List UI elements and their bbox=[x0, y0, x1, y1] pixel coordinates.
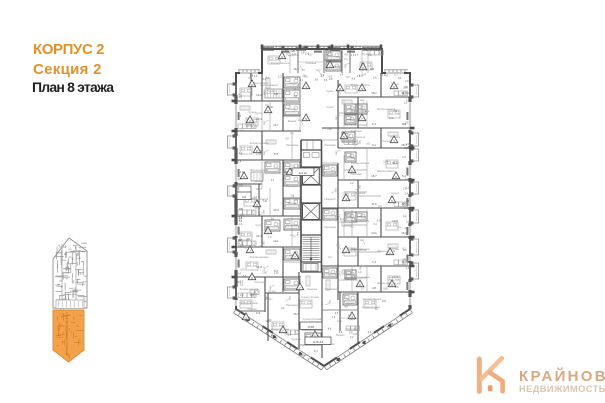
svg-text:4,6: 4,6 bbox=[242, 195, 247, 199]
svg-text:2,3: 2,3 bbox=[376, 49, 380, 52]
svg-text:Прихожая: Прихожая bbox=[286, 143, 299, 147]
svg-text:9,8: 9,8 bbox=[370, 67, 374, 71]
svg-text:3,9: 3,9 bbox=[405, 179, 409, 182]
svg-text:15,2: 15,2 bbox=[371, 91, 377, 95]
svg-text:1: 1 bbox=[267, 230, 269, 234]
svg-text:1,4: 1,4 bbox=[340, 74, 344, 77]
svg-text:3,5: 3,5 bbox=[382, 299, 386, 303]
svg-text:2,40: 2,40 bbox=[256, 153, 261, 156]
svg-text:Прихожая: Прихожая bbox=[324, 225, 337, 229]
svg-text:Прихожая: Прихожая bbox=[350, 248, 362, 251]
svg-text:9: 9 bbox=[281, 55, 283, 59]
svg-text:5,8: 5,8 bbox=[274, 92, 278, 96]
svg-text:1,1: 1,1 bbox=[332, 316, 336, 319]
svg-text:5,5: 5,5 bbox=[274, 152, 278, 156]
svg-text:7: 7 bbox=[249, 249, 251, 253]
svg-text:3,6: 3,6 bbox=[315, 78, 319, 81]
svg-text:2,3: 2,3 bbox=[278, 76, 282, 79]
svg-text:Кор.: Кор. bbox=[327, 127, 332, 131]
svg-text:9,1: 9,1 bbox=[372, 143, 376, 147]
svg-text:1,8: 1,8 bbox=[398, 77, 402, 80]
svg-text:Жилая комната: Жилая комната bbox=[250, 255, 269, 259]
svg-text:4,3: 4,3 bbox=[328, 75, 332, 78]
svg-text:Прихожая: Прихожая bbox=[286, 223, 299, 227]
svg-text:9: 9 bbox=[251, 83, 253, 87]
svg-text:2,6: 2,6 bbox=[362, 73, 366, 76]
svg-text:3,8: 3,8 bbox=[291, 50, 295, 53]
svg-text:1: 1 bbox=[393, 139, 395, 143]
svg-text:6: 6 bbox=[391, 199, 393, 203]
svg-text:6: 6 bbox=[251, 276, 253, 280]
svg-text:17,7: 17,7 bbox=[256, 187, 262, 191]
svg-text:Жилая комната: Жилая комната bbox=[250, 141, 269, 145]
svg-text:4,1: 4,1 bbox=[266, 296, 270, 299]
svg-text:16,2: 16,2 bbox=[401, 231, 407, 235]
svg-text:6,2 м²: 6,2 м² bbox=[299, 171, 307, 175]
svg-text:3,30: 3,30 bbox=[377, 220, 382, 223]
svg-text:1,8: 1,8 bbox=[292, 53, 296, 56]
svg-text:16,7: 16,7 bbox=[293, 312, 299, 316]
svg-text:2,1: 2,1 bbox=[382, 74, 386, 77]
svg-text:8,66: 8,66 bbox=[308, 325, 314, 329]
svg-text:1,4: 1,4 bbox=[239, 223, 243, 226]
svg-text:1,5: 1,5 bbox=[374, 307, 378, 310]
svg-text:9: 9 bbox=[243, 175, 245, 179]
svg-text:4,1: 4,1 bbox=[266, 77, 270, 80]
svg-text:Кухня-гостиная: Кухня-гостиная bbox=[301, 296, 319, 299]
svg-text:13,4: 13,4 bbox=[273, 208, 279, 212]
svg-text:Жилая комната: Жилая комната bbox=[351, 161, 370, 165]
svg-text:Кор.: Кор. bbox=[337, 319, 342, 323]
svg-text:4,8: 4,8 bbox=[352, 78, 356, 81]
svg-text:Кухня-гостиная: Кухня-гостиная bbox=[240, 302, 258, 305]
svg-text:Жилая комната: Жилая комната bbox=[377, 108, 396, 111]
svg-text:7: 7 bbox=[361, 117, 363, 121]
svg-text:Спальня: Спальня bbox=[306, 61, 317, 65]
svg-text:Прихожая: Прихожая bbox=[350, 130, 362, 133]
svg-text:13,2: 13,2 bbox=[256, 93, 262, 97]
svg-text:6: 6 bbox=[362, 66, 364, 70]
svg-text:1,8: 1,8 bbox=[368, 54, 372, 57]
svg-text:4,8: 4,8 bbox=[372, 286, 376, 290]
svg-text:4,6: 4,6 bbox=[328, 327, 332, 330]
svg-text:3,5: 3,5 bbox=[239, 185, 243, 188]
svg-text:Спальня: Спальня bbox=[355, 191, 366, 195]
svg-text:2,5: 2,5 bbox=[405, 122, 409, 125]
svg-text:Кухня: Кухня bbox=[256, 223, 264, 227]
svg-text:Спальня: Спальня bbox=[307, 287, 318, 291]
svg-text:Прихожая: Прихожая bbox=[286, 303, 299, 307]
svg-text:Ванная: Ванная bbox=[288, 202, 297, 205]
svg-text:4,5: 4,5 bbox=[404, 227, 408, 230]
svg-text:2,9: 2,9 bbox=[339, 331, 343, 334]
svg-text:4: 4 bbox=[351, 315, 353, 319]
svg-text:Лоджия: Лоджия bbox=[336, 334, 346, 337]
svg-text:3,7: 3,7 bbox=[346, 76, 350, 79]
svg-text:5: 5 bbox=[343, 135, 345, 139]
svg-text:3,60: 3,60 bbox=[389, 117, 394, 120]
svg-text:4,8: 4,8 bbox=[406, 200, 410, 203]
svg-text:1,6: 1,6 bbox=[403, 188, 407, 191]
svg-text:2,6: 2,6 bbox=[268, 319, 272, 322]
svg-text:6: 6 bbox=[267, 109, 269, 113]
svg-text:Кухня-гостиная: Кухня-гостиная bbox=[303, 317, 322, 321]
svg-text:15,7: 15,7 bbox=[371, 174, 377, 178]
svg-text:4: 4 bbox=[305, 85, 307, 89]
svg-text:3,4: 3,4 bbox=[281, 307, 285, 310]
svg-text:Жилая комната: Жилая комната bbox=[351, 275, 370, 279]
svg-text:12,4: 12,4 bbox=[392, 275, 398, 279]
svg-text:9,3: 9,3 bbox=[250, 293, 254, 297]
svg-text:4,4: 4,4 bbox=[254, 75, 258, 78]
svg-text:11,7: 11,7 bbox=[273, 123, 279, 127]
svg-text:8: 8 bbox=[359, 283, 361, 287]
svg-text:1,00: 1,00 bbox=[353, 333, 358, 336]
svg-text:1: 1 bbox=[345, 249, 347, 253]
svg-text:8: 8 bbox=[393, 85, 395, 89]
svg-text:Жилая: Жилая bbox=[255, 179, 264, 183]
svg-text:1,4: 1,4 bbox=[404, 193, 408, 196]
svg-text:1,9: 1,9 bbox=[250, 75, 254, 78]
svg-text:4,8: 4,8 bbox=[239, 152, 243, 155]
svg-text:Прихожая: Прихожая bbox=[350, 173, 362, 176]
svg-text:1,4: 1,4 bbox=[238, 161, 242, 164]
svg-text:Кухня: Кухня bbox=[392, 191, 400, 195]
svg-text:3,8: 3,8 bbox=[238, 96, 242, 99]
svg-text:5: 5 bbox=[361, 87, 363, 91]
svg-text:14,2: 14,2 bbox=[392, 161, 398, 165]
svg-text:10,1: 10,1 bbox=[256, 234, 262, 238]
svg-text:Кухня: Кухня bbox=[327, 106, 334, 109]
svg-text:3,4: 3,4 bbox=[405, 92, 409, 95]
svg-text:2,8: 2,8 bbox=[329, 78, 333, 81]
svg-text:3,4: 3,4 bbox=[324, 79, 328, 82]
svg-text:Ванная: Ванная bbox=[288, 107, 297, 111]
svg-text:Ванная: Ванная bbox=[288, 120, 297, 123]
svg-text:Жилая комната: Жилая комната bbox=[240, 287, 259, 291]
svg-text:2,0: 2,0 bbox=[285, 50, 289, 53]
svg-text:1,10: 1,10 bbox=[274, 272, 279, 275]
svg-text:Жилая комната: Жилая комната bbox=[260, 84, 279, 87]
svg-text:2,4: 2,4 bbox=[238, 115, 242, 118]
svg-text:Прихожая: Прихожая bbox=[346, 328, 358, 331]
svg-text:4,8: 4,8 bbox=[404, 86, 408, 89]
svg-text:Кухня: Кухня bbox=[249, 111, 256, 114]
svg-text:2,5: 2,5 bbox=[335, 312, 339, 315]
svg-text:2,4: 2,4 bbox=[305, 53, 309, 56]
svg-text:11,6: 11,6 bbox=[371, 202, 377, 206]
svg-text:Лоджия: Лоджия bbox=[300, 354, 310, 357]
svg-text:4,0: 4,0 bbox=[308, 54, 312, 57]
svg-text:3: 3 bbox=[245, 316, 247, 320]
svg-text:Кухня: Кухня bbox=[269, 289, 277, 293]
svg-text:Гардероб: Гардероб bbox=[325, 198, 337, 201]
svg-text:Кухня: Кухня bbox=[256, 111, 264, 115]
svg-text:2,6: 2,6 bbox=[357, 75, 361, 78]
svg-text:1,4: 1,4 bbox=[406, 267, 410, 270]
svg-text:2,4: 2,4 bbox=[302, 75, 306, 78]
svg-text:S=8,34: S=8,34 bbox=[313, 340, 323, 344]
svg-text:9,3: 9,3 bbox=[256, 311, 260, 315]
svg-text:13,1: 13,1 bbox=[371, 231, 377, 235]
svg-text:4,2: 4,2 bbox=[350, 336, 354, 339]
svg-text:7: 7 bbox=[299, 286, 301, 290]
svg-text:2,6: 2,6 bbox=[406, 143, 410, 146]
svg-text:1,9: 1,9 bbox=[404, 102, 408, 105]
svg-text:4: 4 bbox=[395, 175, 397, 179]
svg-text:4,8: 4,8 bbox=[364, 49, 368, 52]
svg-text:7: 7 bbox=[329, 64, 331, 68]
svg-text:1,3: 1,3 bbox=[238, 219, 242, 222]
svg-text:4: 4 bbox=[345, 197, 347, 201]
svg-text:7: 7 bbox=[282, 329, 284, 333]
svg-text:2,6: 2,6 bbox=[240, 208, 244, 211]
svg-text:12,1: 12,1 bbox=[273, 239, 279, 243]
svg-text:9: 9 bbox=[339, 87, 341, 91]
svg-text:Прихожая: Прихожая bbox=[324, 171, 337, 175]
svg-text:2,80: 2,80 bbox=[345, 214, 350, 217]
svg-text:1,6: 1,6 bbox=[402, 258, 406, 261]
svg-text:Прихожая: Прихожая bbox=[286, 184, 299, 188]
svg-text:3,70: 3,70 bbox=[240, 269, 245, 272]
svg-text:3,40: 3,40 bbox=[262, 200, 267, 203]
svg-text:Жилая комната: Жилая комната bbox=[250, 169, 269, 172]
svg-text:1,4: 1,4 bbox=[237, 272, 241, 275]
svg-text:8: 8 bbox=[256, 149, 258, 153]
svg-text:4,9: 4,9 bbox=[344, 53, 348, 56]
svg-text:1,5: 1,5 bbox=[339, 51, 343, 54]
svg-text:7: 7 bbox=[294, 255, 296, 259]
svg-text:1,2: 1,2 bbox=[295, 78, 299, 81]
svg-text:5,1: 5,1 bbox=[372, 122, 376, 126]
svg-text:1,1: 1,1 bbox=[351, 54, 355, 57]
svg-text:Жилая комната: Жилая комната bbox=[351, 109, 370, 113]
svg-text:3: 3 bbox=[256, 203, 258, 207]
svg-text:3,9: 3,9 bbox=[240, 294, 244, 297]
svg-text:2,20: 2,20 bbox=[383, 161, 388, 164]
svg-text:2,9: 2,9 bbox=[405, 80, 409, 83]
svg-text:5: 5 bbox=[305, 117, 307, 121]
svg-text:Прихожая: Прихожая bbox=[324, 144, 336, 147]
svg-text:Жилая комната: Жилая комната bbox=[351, 219, 370, 223]
svg-text:3: 3 bbox=[249, 119, 251, 123]
svg-text:1,7: 1,7 bbox=[355, 54, 359, 57]
svg-text:4,4: 4,4 bbox=[240, 130, 244, 133]
svg-text:3,4: 3,4 bbox=[321, 75, 325, 78]
svg-text:2,50: 2,50 bbox=[262, 272, 267, 275]
svg-text:Жилая комната: Жилая комната bbox=[363, 297, 382, 301]
svg-text:Лоджия: Лоджия bbox=[291, 337, 301, 341]
svg-text:10,9: 10,9 bbox=[392, 219, 398, 223]
svg-text:Прихожая: Прихожая bbox=[325, 287, 338, 291]
svg-text:2,1: 2,1 bbox=[406, 187, 410, 190]
svg-text:10,4: 10,4 bbox=[256, 117, 262, 121]
svg-text:1,3: 1,3 bbox=[402, 156, 406, 159]
svg-text:Спальня: Спальня bbox=[254, 281, 265, 284]
svg-text:1,0: 1,0 bbox=[406, 220, 410, 223]
svg-text:Жилая комната: Жилая комната bbox=[377, 170, 396, 173]
svg-text:7: 7 bbox=[289, 171, 291, 175]
svg-text:4,3: 4,3 bbox=[239, 242, 243, 245]
svg-text:2,1: 2,1 bbox=[300, 79, 304, 82]
svg-text:7,4: 7,4 bbox=[372, 260, 376, 264]
svg-text:6: 6 bbox=[351, 169, 353, 173]
svg-text:1: 1 bbox=[389, 251, 391, 255]
svg-text:6,7: 6,7 bbox=[314, 349, 318, 353]
svg-text:4,2: 4,2 bbox=[368, 331, 372, 334]
svg-text:4,6: 4,6 bbox=[344, 305, 348, 308]
svg-text:5,4: 5,4 bbox=[402, 174, 406, 178]
svg-text:2,1: 2,1 bbox=[328, 52, 332, 55]
svg-text:4,2: 4,2 bbox=[402, 247, 406, 250]
svg-text:Кухня: Кухня bbox=[327, 89, 335, 93]
svg-text:3,3: 3,3 bbox=[404, 207, 408, 210]
svg-text:3,2: 3,2 bbox=[403, 215, 407, 218]
svg-text:3,00: 3,00 bbox=[383, 287, 388, 290]
svg-text:18,3: 18,3 bbox=[293, 67, 299, 71]
svg-text:6: 6 bbox=[391, 283, 393, 287]
svg-text:2,8: 2,8 bbox=[373, 76, 377, 79]
svg-text:Жилая комната: Жилая комната bbox=[271, 61, 290, 65]
svg-text:12,8: 12,8 bbox=[256, 265, 262, 269]
svg-text:2,2: 2,2 bbox=[405, 147, 409, 150]
svg-text:Спальня: Спальня bbox=[355, 135, 366, 139]
